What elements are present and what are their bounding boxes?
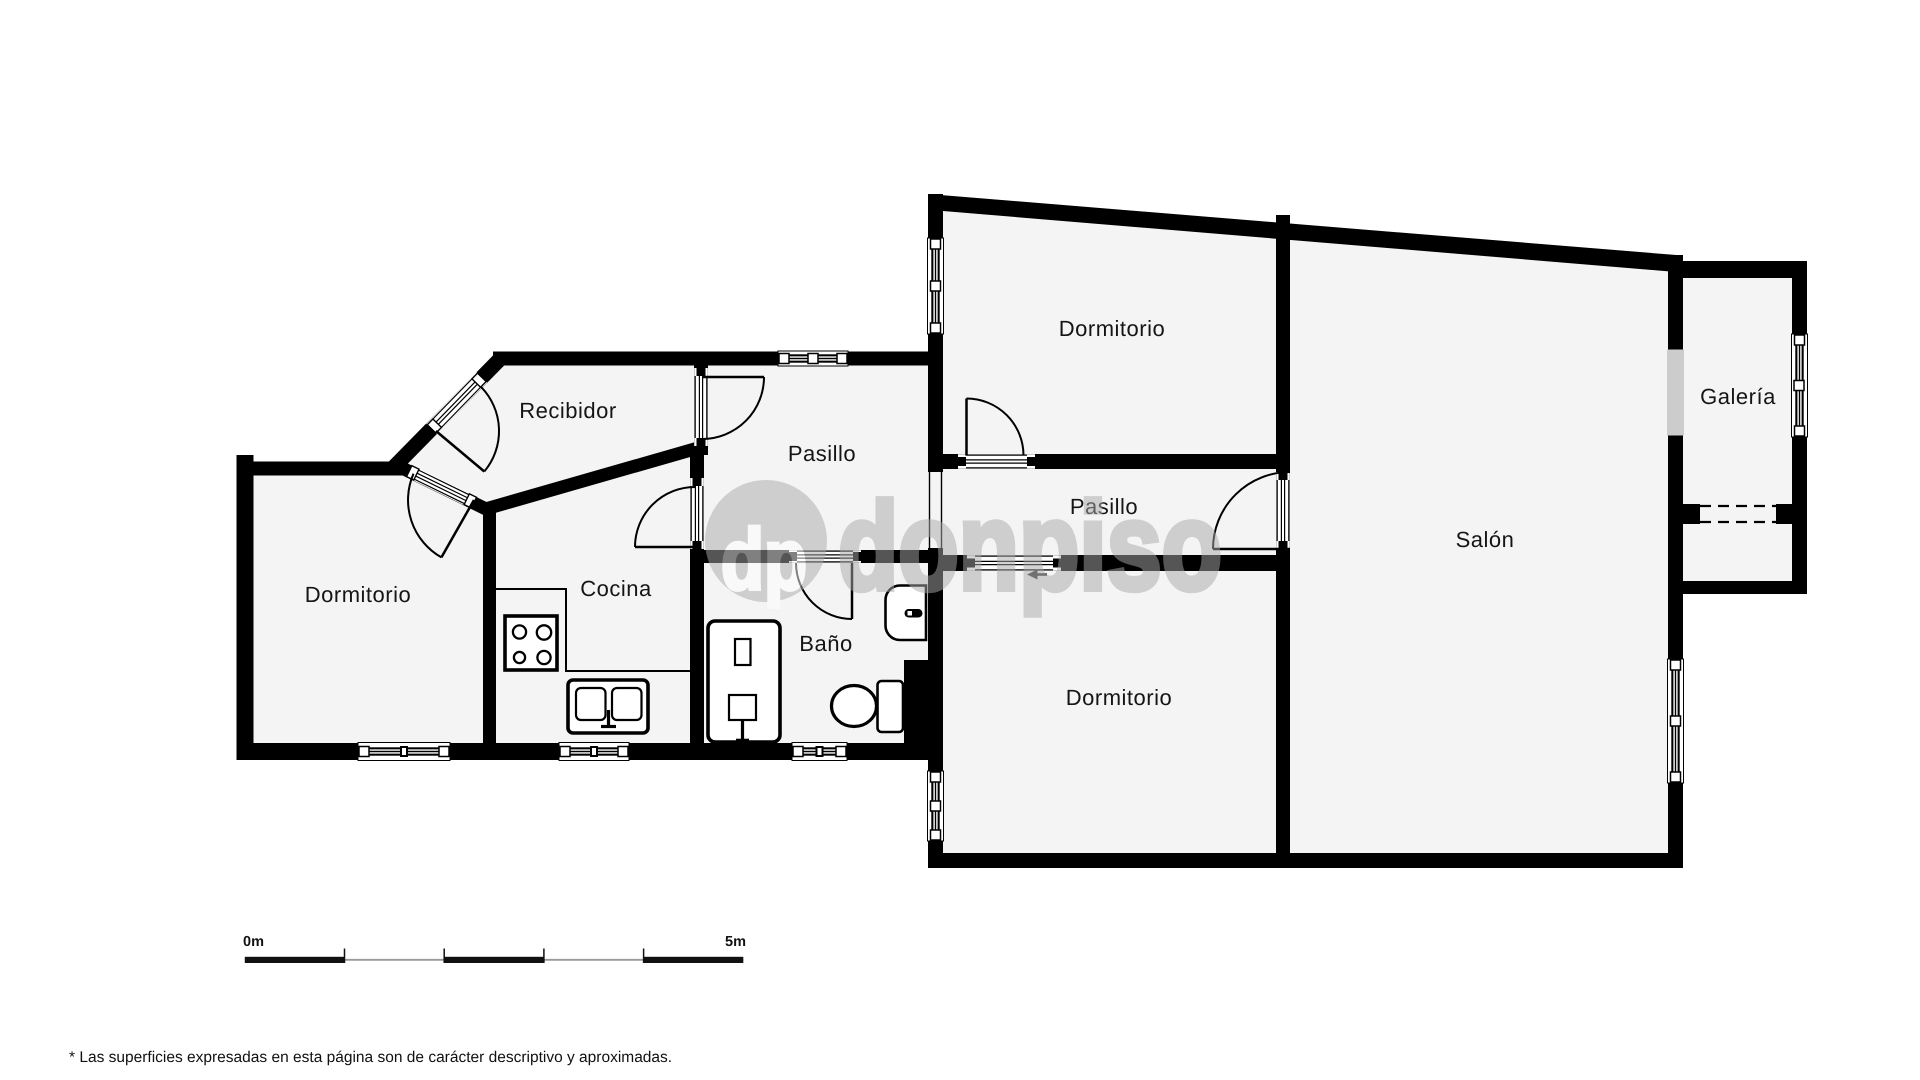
svg-text:Pasillo: Pasillo — [788, 441, 856, 466]
svg-text:Cocina: Cocina — [580, 576, 652, 601]
svg-text:donpiso: donpiso — [838, 478, 1222, 616]
svg-text:Dormitorio: Dormitorio — [1059, 316, 1165, 341]
svg-text:Galería: Galería — [1700, 384, 1776, 409]
svg-text:Recibidor: Recibidor — [519, 398, 616, 423]
svg-text:0m: 0m — [243, 934, 264, 950]
svg-text:Baño: Baño — [799, 631, 852, 656]
svg-text:Salón: Salón — [1456, 527, 1515, 552]
svg-text:* Las superficies expresadas e: * Las superficies expresadas en esta pág… — [69, 1049, 672, 1066]
svg-text:Dormitorio: Dormitorio — [305, 582, 411, 607]
svg-text:5m: 5m — [725, 934, 746, 950]
svg-text:Dormitorio: Dormitorio — [1066, 685, 1172, 710]
svg-text:dp: dp — [721, 512, 807, 608]
